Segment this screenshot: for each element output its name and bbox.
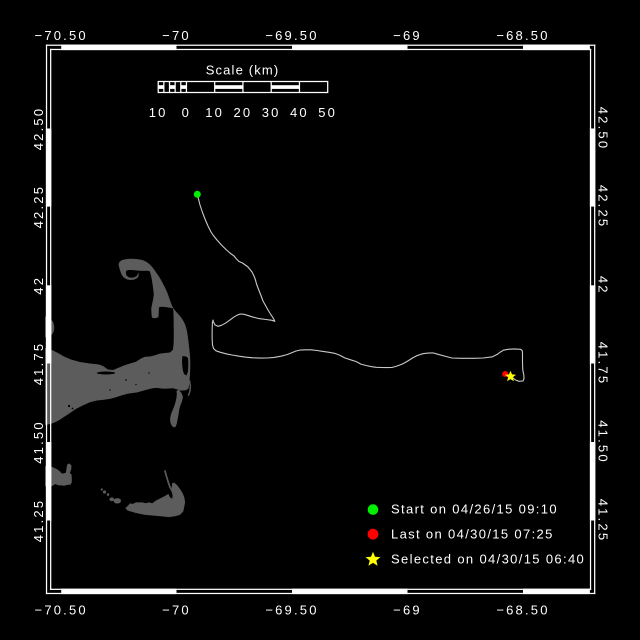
- svg-text:−69.50: −69.50: [265, 603, 318, 618]
- svg-text:41.25: 41.25: [596, 499, 611, 543]
- svg-text:Last on 04/30/15 07:25: Last on 04/30/15 07:25: [391, 527, 554, 542]
- svg-text:42: 42: [596, 276, 611, 295]
- svg-text:−70: −70: [162, 603, 191, 618]
- svg-text:−68.50: −68.50: [496, 28, 549, 43]
- svg-text:42.50: 42.50: [31, 107, 46, 151]
- svg-text:41.75: 41.75: [596, 342, 611, 386]
- svg-text:0: 0: [182, 105, 191, 120]
- svg-text:20: 20: [233, 105, 252, 120]
- svg-text:−68.50: −68.50: [496, 603, 549, 618]
- svg-text:40: 40: [290, 105, 309, 120]
- svg-text:−69: −69: [393, 603, 422, 618]
- svg-text:10: 10: [205, 105, 224, 120]
- svg-text:42.50: 42.50: [596, 107, 611, 151]
- svg-text:50: 50: [318, 105, 337, 120]
- svg-text:42.25: 42.25: [31, 185, 46, 229]
- svg-text:Scale (km): Scale (km): [206, 63, 280, 78]
- svg-text:10: 10: [149, 105, 168, 120]
- svg-text:−69: −69: [393, 28, 422, 43]
- svg-text:Selected on 04/30/15 06:40: Selected on 04/30/15 06:40: [391, 552, 585, 567]
- svg-text:−70: −70: [162, 28, 191, 43]
- svg-text:−70.50: −70.50: [35, 28, 88, 43]
- svg-text:41.50: 41.50: [31, 420, 46, 464]
- svg-text:30: 30: [262, 105, 281, 120]
- svg-text:Start on 04/26/15 09:10: Start on 04/26/15 09:10: [391, 502, 558, 517]
- svg-text:42: 42: [31, 276, 46, 295]
- svg-text:41.75: 41.75: [31, 342, 46, 386]
- svg-text:41.50: 41.50: [596, 420, 611, 464]
- svg-text:42.25: 42.25: [596, 185, 611, 229]
- svg-text:−69.50: −69.50: [265, 28, 318, 43]
- svg-text:41.25: 41.25: [31, 499, 46, 543]
- svg-text:−70.50: −70.50: [35, 603, 88, 618]
